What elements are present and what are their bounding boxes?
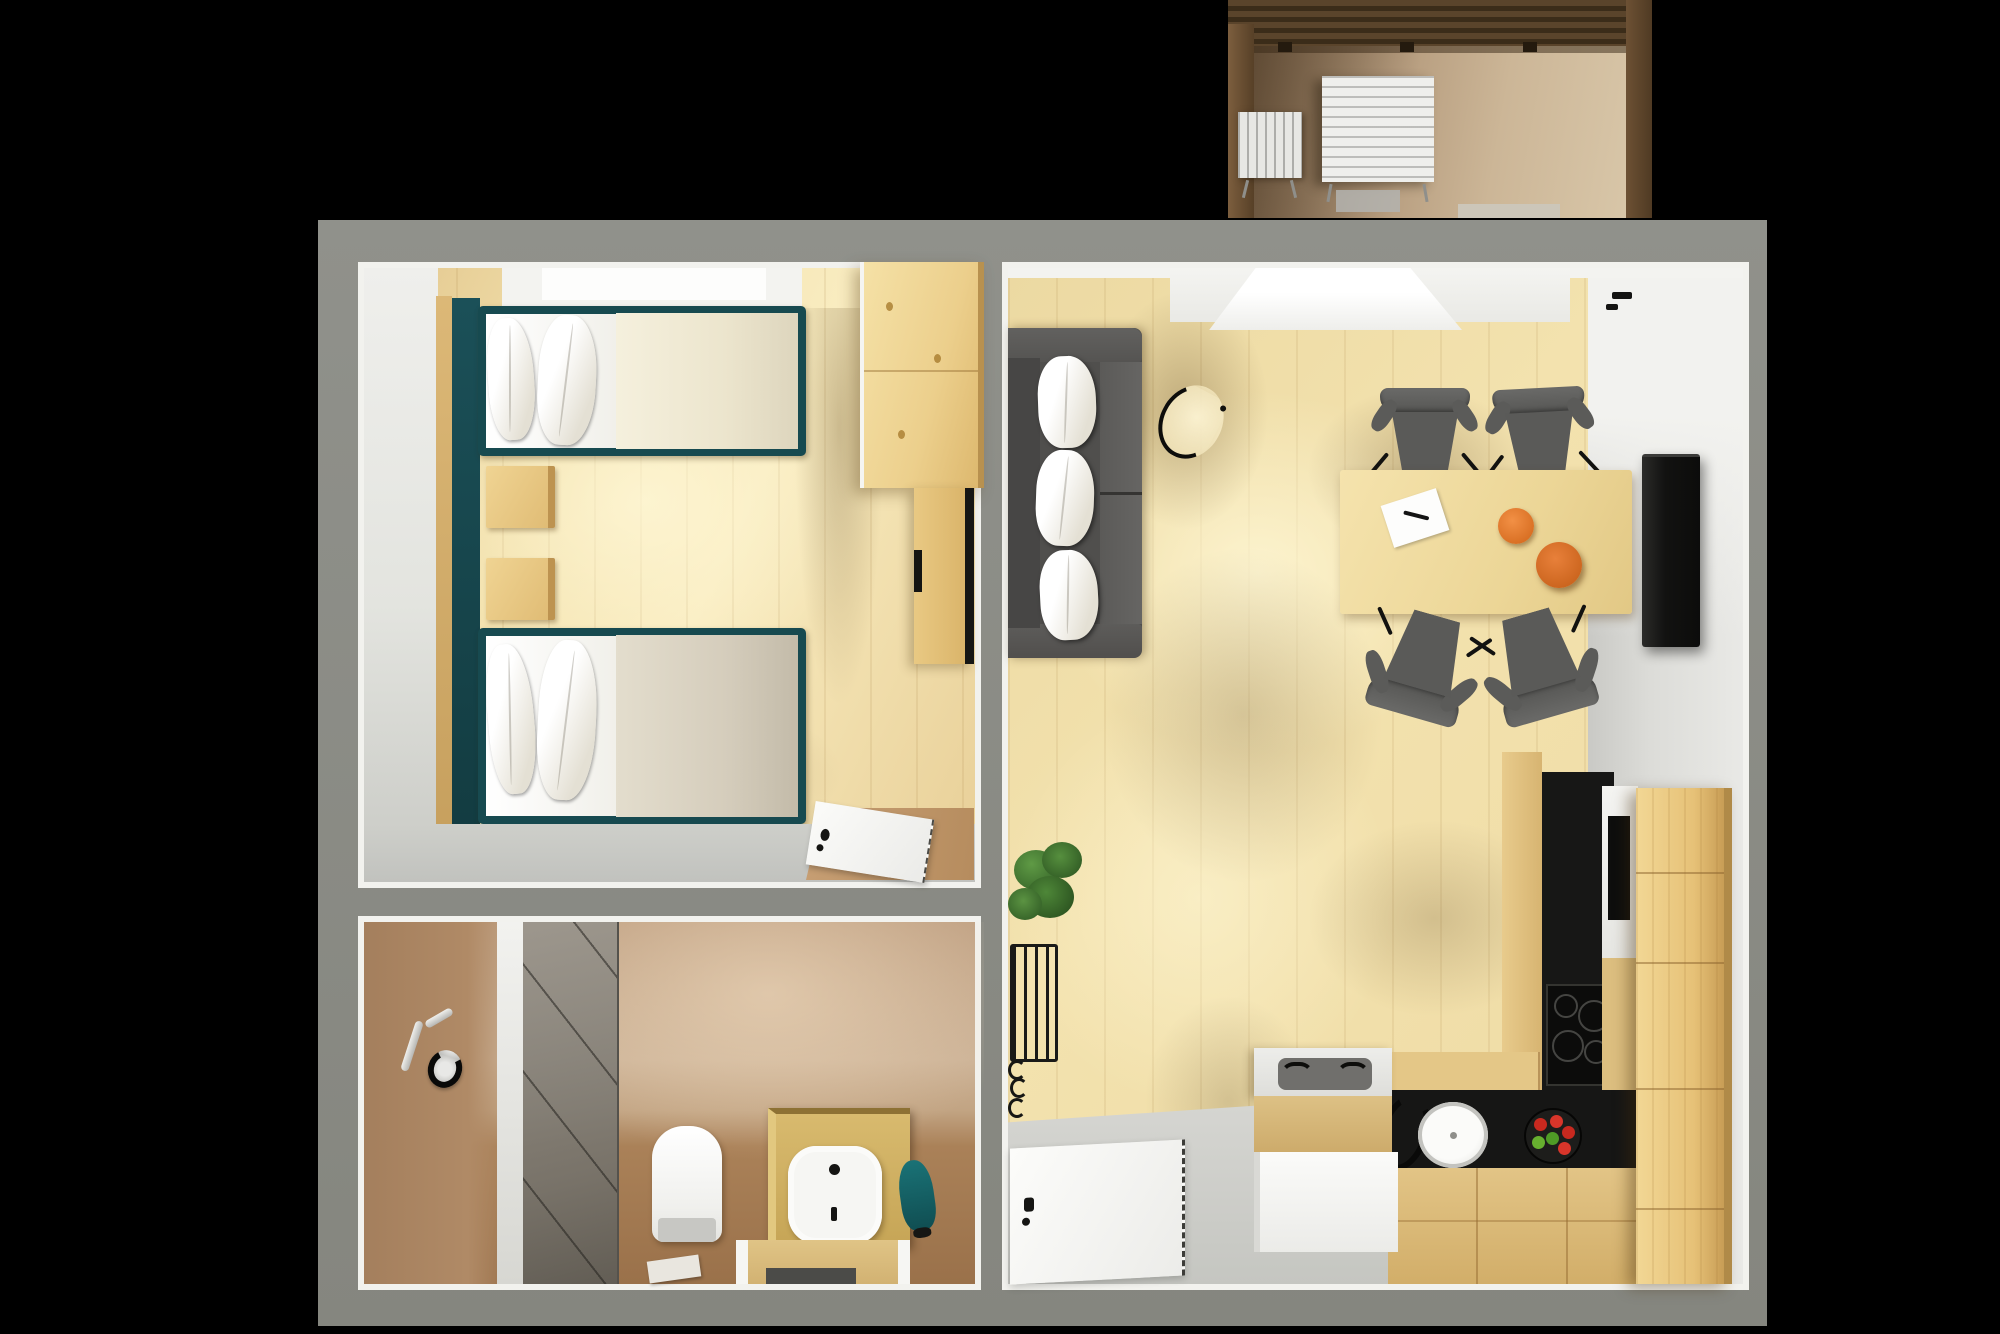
washbasin (788, 1146, 882, 1244)
balcony-slatted-chair (1238, 112, 1302, 178)
desk-drawer-slot (914, 550, 922, 592)
apple-icon (1562, 1126, 1575, 1139)
wood-knot (898, 430, 905, 439)
cabinet-seam (1636, 1208, 1724, 1210)
sofa-seam (1100, 492, 1142, 495)
serving-tray (1278, 1058, 1372, 1090)
floorplan-scene (0, 0, 2000, 1334)
bath-bench (736, 1240, 910, 1284)
kitchen-cabinet-run (1502, 752, 1542, 1092)
wardrobe-door-seam (864, 370, 978, 372)
balcony-right-wall (1626, 0, 1652, 218)
balcony-door-threshold (1458, 204, 1560, 218)
nightstand-upper (486, 466, 555, 528)
door-handle-icon (1612, 292, 1632, 299)
balcony-bracket-icon (1278, 42, 1292, 52)
vine-curl (1008, 1060, 1026, 1080)
toilet (652, 1126, 722, 1242)
dining-chair (1380, 388, 1470, 472)
bedroom (358, 262, 981, 888)
balcony-slatted-table (1322, 76, 1434, 182)
sofa (1008, 328, 1142, 658)
headboard-teal-panel (452, 298, 480, 882)
vine-curl (1010, 1078, 1028, 1098)
entry-door-leaf (1010, 1139, 1185, 1284)
apple-icon (1550, 1115, 1563, 1128)
apple-icon (1546, 1132, 1559, 1145)
cabinet-seam (1636, 962, 1724, 964)
fruit-bowl (1526, 1110, 1580, 1162)
bed-duvet (616, 313, 798, 449)
dining-chair (1492, 386, 1588, 475)
kitchen-island-front (1254, 1152, 1398, 1252)
wood-knot (934, 354, 941, 363)
door-handle-icon (820, 828, 831, 841)
bed-duvet (616, 635, 798, 817)
built-in-oven (1602, 786, 1638, 958)
plant-stand (1010, 944, 1058, 1062)
tv-panel (1642, 454, 1700, 647)
bathroom-left-wall (364, 922, 512, 1284)
paper-with-pen (1381, 488, 1450, 548)
hook-arm (400, 1020, 424, 1072)
bed-bottom (478, 628, 806, 824)
kitchen-sink (1418, 1102, 1488, 1168)
door-handle-icon (816, 844, 824, 852)
chair-seat (1392, 412, 1459, 472)
kitchen-island-top (1254, 1048, 1392, 1096)
headboard-pine-strip (436, 296, 452, 882)
tall-pine-cabinet (1636, 788, 1732, 1284)
wardrobe (860, 262, 984, 488)
apple-icon (1558, 1142, 1571, 1155)
shower-glass-panel (523, 922, 619, 1284)
desk-dark-edge (965, 488, 974, 664)
towel-hook-icon (402, 1014, 458, 1090)
cabinet-seam (1636, 1088, 1724, 1090)
kitchen-island-pine-band (1254, 1096, 1392, 1152)
window-glass (542, 268, 766, 300)
leaf-cluster (1008, 888, 1042, 920)
sofa-cushion (1034, 449, 1095, 547)
plant-vine (1008, 1060, 1026, 1120)
apple-icon (1532, 1136, 1545, 1149)
leaf-cluster (1042, 842, 1082, 878)
door-handle-icon (1024, 1197, 1034, 1212)
potted-plant-foliage (1008, 842, 1086, 942)
shower-frame-strip (497, 922, 523, 1284)
cabinet-seam (1636, 872, 1724, 874)
door-handle-icon (1022, 1218, 1030, 1226)
nightstand-lower (486, 558, 555, 620)
door-handle-icon (1606, 304, 1618, 310)
dresser-desk (914, 488, 974, 664)
bedroom-left-wall-face (364, 268, 438, 882)
sofa-cushion (1036, 355, 1097, 449)
apple-icon (1534, 1118, 1547, 1131)
sofa-cushion (1038, 549, 1101, 642)
bathroom (358, 916, 981, 1290)
faucet-icon (829, 1164, 840, 1175)
balcony-shadow (1254, 46, 1626, 218)
wood-knot (886, 302, 893, 311)
dining-table (1340, 470, 1632, 614)
orange-fruit (1498, 508, 1534, 544)
balcony-frame-lip (1254, 46, 1626, 53)
bathroom-floor-mat (647, 1254, 702, 1283)
balcony-mat (1336, 190, 1400, 212)
balcony (1228, 0, 1652, 218)
balcony-top-wood-frame (1228, 0, 1652, 46)
vine-curl (1008, 1098, 1026, 1118)
balcony-bracket-icon (1523, 42, 1537, 52)
bed-top (478, 306, 806, 456)
orange-fruit (1536, 542, 1582, 588)
kitchen-drawer-fronts (1388, 1168, 1672, 1284)
burner-icon (1554, 994, 1578, 1018)
chair-seat (1505, 410, 1576, 474)
drain-icon (831, 1207, 837, 1221)
burner-icon (1552, 1030, 1584, 1062)
balcony-bracket-icon (1400, 42, 1414, 52)
living-room (1002, 262, 1749, 1290)
